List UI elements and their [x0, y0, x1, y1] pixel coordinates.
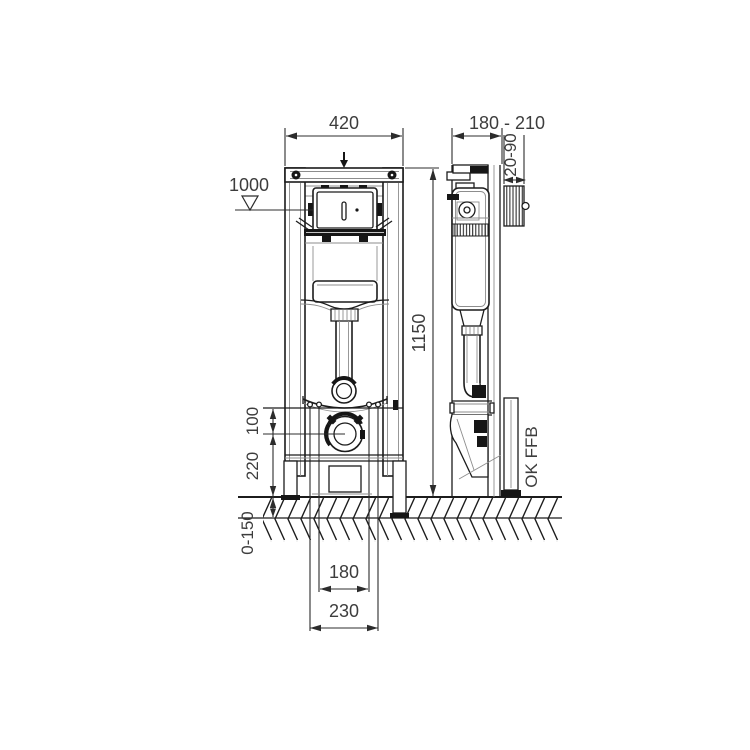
flush-plate-box	[308, 185, 382, 235]
dim-0-150-label: 0-150	[238, 511, 257, 554]
side-foot	[501, 490, 521, 497]
side-view	[447, 165, 529, 497]
left-rail	[285, 168, 305, 476]
dim-1150: 1150	[405, 168, 439, 496]
wall-finish-block	[504, 186, 529, 226]
right-rail	[383, 168, 403, 476]
dim-230: 230	[310, 601, 378, 631]
front-view	[263, 152, 409, 631]
ground-hatch	[263, 498, 560, 542]
level-triangle	[242, 196, 258, 210]
dim-420-label: 420	[329, 113, 359, 133]
dim-180: 180	[320, 562, 368, 592]
floor-ref-label: OK FFB	[522, 426, 541, 487]
dim-20-90-label: 20-90	[501, 133, 520, 176]
dim-1150-label: 1150	[409, 314, 429, 353]
cistern-bottom-cover	[301, 281, 389, 313]
dim-180-210-label: 180 - 210	[469, 113, 545, 133]
dim-230-label: 230	[329, 601, 359, 621]
dim-100-label: 100	[243, 407, 262, 435]
dim-1000-label: 1000	[229, 175, 269, 195]
right-foot	[390, 513, 409, 518]
left-leg	[284, 461, 297, 496]
dim-180-label: 180	[329, 562, 359, 582]
left-foot	[281, 495, 300, 500]
pan-connector-side	[450, 401, 501, 479]
right-leg	[393, 461, 406, 513]
wall-bracket	[447, 165, 488, 180]
dim-20-90: 20-90	[501, 133, 526, 184]
drain-outlet	[326, 414, 365, 452]
technical-drawing-page: 420 180 - 210 20-90 1000	[0, 0, 750, 750]
flush-pipe-front	[331, 309, 358, 403]
top-crossbar	[285, 168, 403, 182]
side-leg	[501, 398, 521, 497]
center-mark	[340, 152, 348, 168]
outlet-box	[329, 466, 361, 492]
cistern-side	[447, 183, 489, 310]
dim-220-label: 220	[243, 452, 262, 480]
flush-pipe-side	[460, 310, 486, 398]
dim-180-210: 180 - 210	[452, 113, 545, 164]
installation-frame-drawing: 420 180 - 210 20-90 1000	[0, 0, 750, 750]
